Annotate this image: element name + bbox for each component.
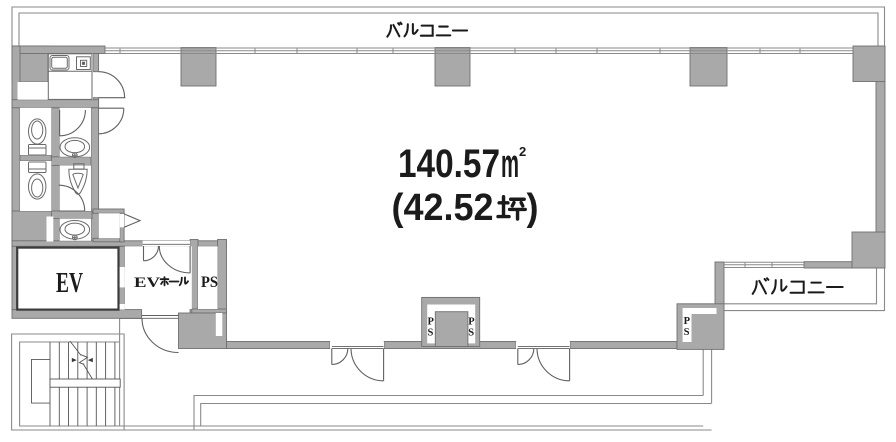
svg-text:): ) [527,187,539,229]
svg-text:2: 2 [519,144,526,159]
svg-text:P: P [468,317,475,328]
svg-text:EV: EV [134,275,160,291]
svg-text:P: P [684,316,691,327]
svg-text:P: P [428,317,435,328]
svg-text:S: S [684,327,690,338]
svg-text:S: S [468,328,474,339]
svg-text:m: m [501,142,519,186]
svg-text:S: S [428,328,434,339]
svg-text:(42.52: (42.52 [392,187,494,229]
svg-text:EV: EV [56,267,83,299]
svg-text:PS: PS [201,274,218,291]
svg-text:140.57: 140.57 [398,142,500,186]
